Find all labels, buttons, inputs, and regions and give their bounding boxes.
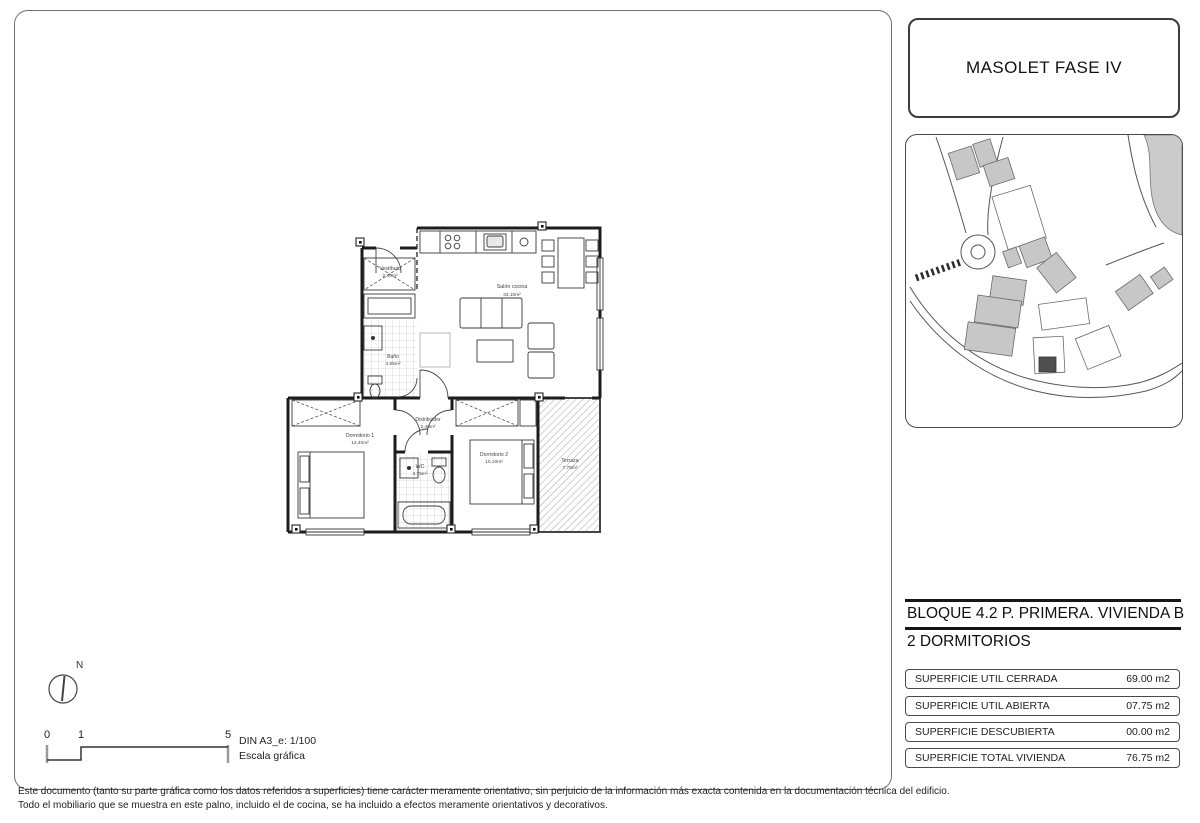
unit-rule-mid <box>905 627 1181 630</box>
surface-row-descubierta: SUPERFICIE DESCUBIERTA 00.00 m2 <box>905 722 1180 742</box>
surface-row-value: 07.75 m2 <box>1126 700 1170 712</box>
disclaimer: Este documento (tanto su parte gráfica c… <box>18 785 1188 812</box>
surface-row-label: SUPERFICIE TOTAL VIVIENDA <box>915 752 1065 764</box>
surface-row-label: SUPERFICIE UTIL CERRADA <box>915 673 1058 685</box>
room-label-terraza: Terraza <box>561 458 578 464</box>
site-map <box>906 135 1182 427</box>
scale-tick-0: 0 <box>44 729 50 741</box>
room-label-dormitorio2: Dormitorio 2 <box>480 452 508 458</box>
surface-row-abierta: SUPERFICIE UTIL ABIERTA 07.75 m2 <box>905 696 1180 716</box>
site-map-highlighted-building <box>1039 357 1056 372</box>
room-area-salon: 33,10m² <box>503 292 521 298</box>
surface-row-label: SUPERFICIE UTIL ABIERTA <box>915 700 1050 712</box>
north-needle <box>62 676 65 701</box>
room-area-dormitorio1: 12,40m² <box>351 440 369 446</box>
terrace-floor <box>538 398 600 532</box>
floor-plan: Vestíbulo 2,40m² Salón cocina 33,10m² Ba… <box>280 200 630 560</box>
room-label-wc: WC <box>416 464 425 470</box>
room-label-salon: Salón cocina <box>497 284 528 290</box>
surface-row-value: 00.00 m2 <box>1126 726 1170 738</box>
site-map-hatched-strip <box>916 262 961 278</box>
north-compass: N <box>49 660 83 703</box>
surface-row-cerrada: SUPERFICIE UTIL CERRADA 69.00 m2 <box>905 669 1180 689</box>
scale-tick-5: 5 <box>225 729 231 741</box>
surface-row-value: 69.00 m2 <box>1126 673 1170 685</box>
disclaimer-line-1: Este documento (tanto su parte gráfica c… <box>18 785 1188 799</box>
room-area-vestibulo: 2,40m² <box>383 273 398 279</box>
room-label-distribuidor: Distribuidor <box>415 417 441 423</box>
north-label: N <box>76 660 83 671</box>
site-map-roundabout <box>961 235 995 269</box>
scale-bar: 0 1 5 <box>44 729 231 763</box>
disclaimer-line-2: Todo el mobiliario que se muestra en est… <box>18 799 1188 813</box>
scale-tick-1: 1 <box>78 729 84 741</box>
project-title-box: MASOLET FASE IV <box>908 18 1180 118</box>
site-map-buildings <box>948 139 1173 374</box>
room-area-terraza: 7,75m² <box>563 465 578 471</box>
unit-rule-top <box>905 599 1181 602</box>
room-label-bano: Baño <box>387 354 399 360</box>
surface-row-total: SUPERFICIE TOTAL VIVIENDA 76.75 m2 <box>905 748 1180 768</box>
drawing-sheet: Vestíbulo 2,40m² Salón cocina 33,10m² Ba… <box>0 0 1200 823</box>
legend: N 0 1 5 DIN A3_e: 1/100 Escala gráfica <box>30 650 370 770</box>
room-area-dormitorio2: 10,10m² <box>485 459 503 465</box>
unit-title: BLOQUE 4.2 P. PRIMERA. VIVIENDA B <box>907 605 1184 623</box>
room-area-distribuidor: 2,40m² <box>421 424 436 430</box>
site-map-box <box>905 134 1183 428</box>
room-area-bano: 4,65m² <box>386 361 401 367</box>
room-label-dormitorio1: Dormitorio 1 <box>346 433 374 439</box>
site-map-vegetation <box>1144 135 1182 235</box>
room-label-vestibulo: Vestíbulo <box>379 266 400 272</box>
surface-row-value: 76.75 m2 <box>1126 752 1170 764</box>
scale-din-label: DIN A3_e: 1/100 <box>239 735 316 747</box>
project-title: MASOLET FASE IV <box>966 58 1122 78</box>
room-area-wc: 3,75m² <box>413 471 428 477</box>
scale-caption: Escala gráfica <box>239 750 305 762</box>
surface-row-label: SUPERFICIE DESCUBIERTA <box>915 726 1055 738</box>
unit-subtitle: 2 DORMITORIOS <box>907 633 1031 651</box>
